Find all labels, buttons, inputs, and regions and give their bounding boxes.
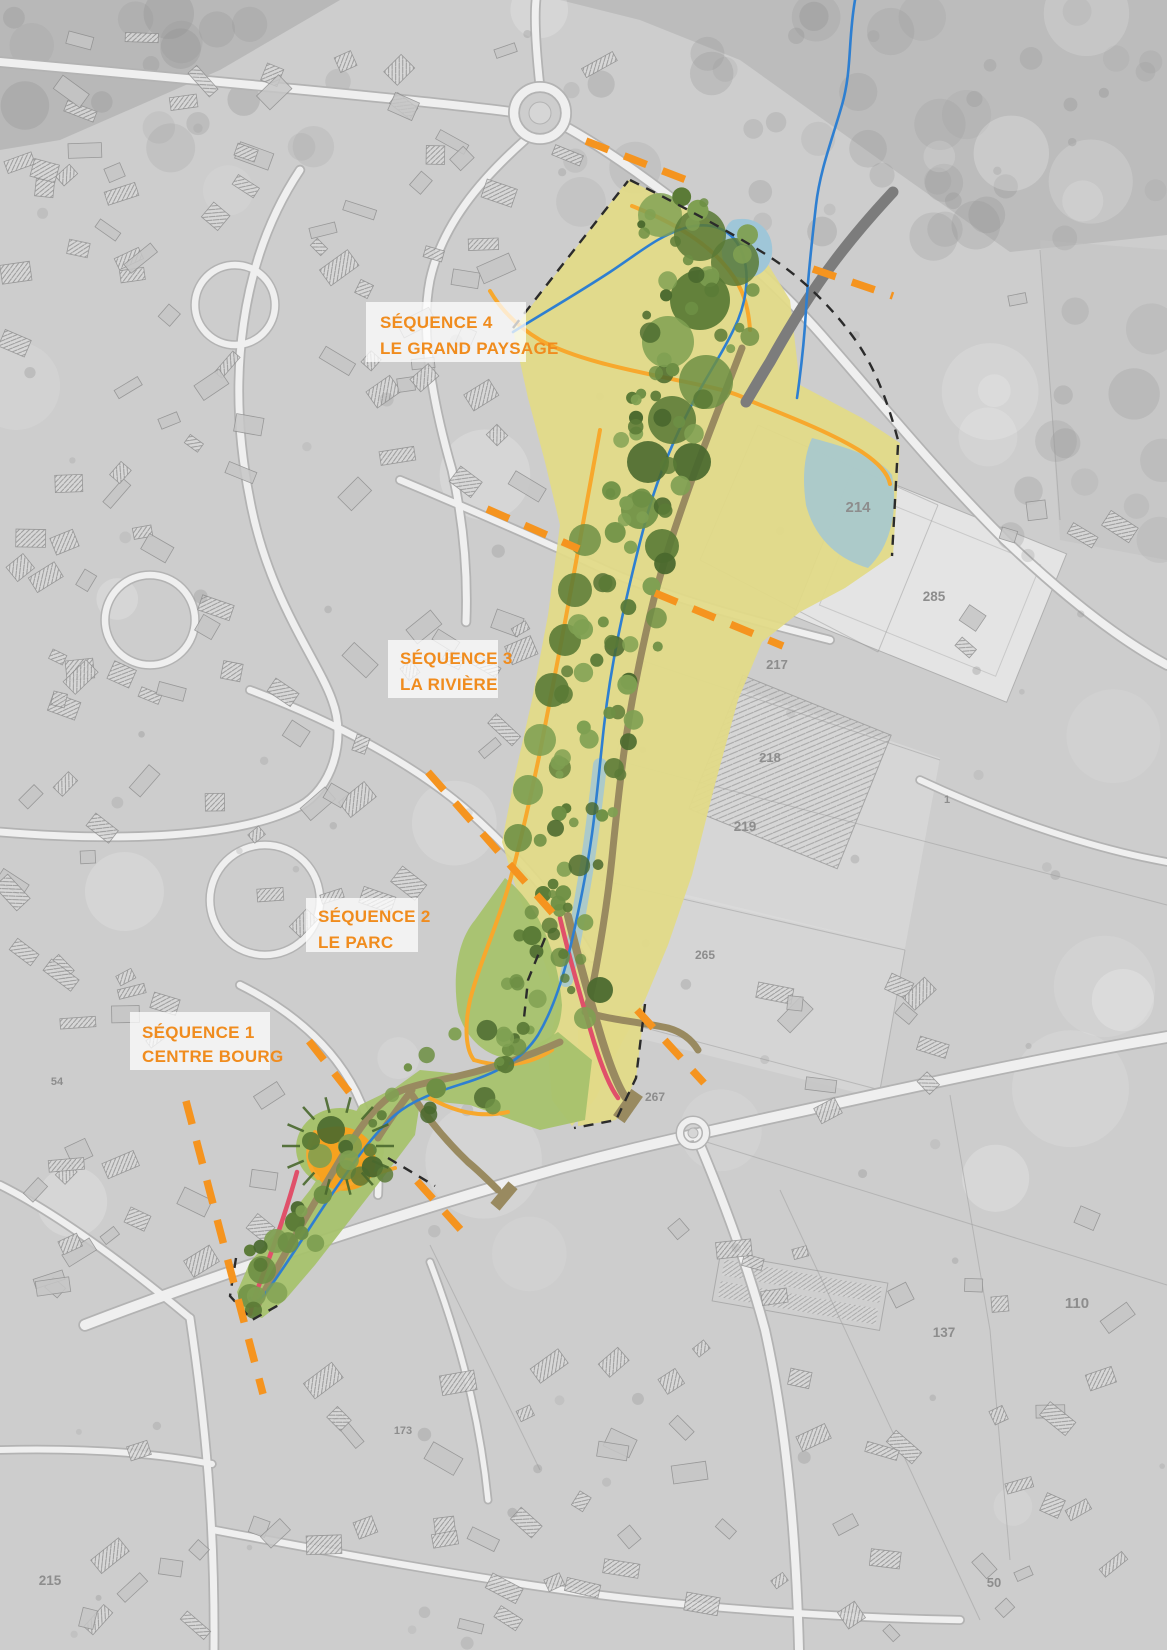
tree [575, 954, 586, 965]
building [220, 661, 243, 682]
parcel-label: 214 [845, 499, 871, 516]
building [68, 143, 102, 159]
tree [580, 730, 599, 749]
tree [617, 675, 637, 695]
gray-tree [24, 367, 35, 378]
gray-tree [193, 124, 202, 133]
forest-texture [1108, 368, 1159, 419]
forest-texture [143, 111, 175, 143]
gray-tree [1077, 610, 1084, 617]
tree [660, 289, 672, 301]
tree [558, 949, 568, 959]
gray-tree [798, 1451, 811, 1464]
tree [385, 1088, 399, 1102]
tree [314, 1186, 332, 1204]
tree [528, 990, 546, 1008]
gray-tree [1042, 862, 1052, 872]
map-canvas: 214 285 217 218 219 265 267 1 110 137 54… [0, 0, 1167, 1650]
tree [568, 855, 590, 877]
tree [577, 914, 593, 930]
tree [631, 394, 642, 405]
forest-texture [1, 81, 50, 130]
building [250, 1169, 278, 1190]
forest-texture [766, 112, 786, 132]
sequence-3-label-line2: LA RIVIÈRE [400, 675, 498, 694]
tree [628, 419, 644, 435]
tree [561, 665, 573, 677]
tree [254, 1258, 268, 1272]
gray-tree [1064, 98, 1078, 112]
forest-texture [749, 180, 773, 204]
tree [587, 977, 613, 1003]
forest-texture [1071, 468, 1098, 495]
gray-tree [867, 30, 879, 42]
tree [504, 824, 532, 852]
tree [649, 366, 663, 380]
building [426, 146, 445, 165]
tree [699, 198, 708, 207]
building [1026, 500, 1047, 521]
tree [567, 986, 575, 994]
tree [513, 775, 543, 805]
forest-texture [293, 126, 334, 167]
tree [604, 758, 624, 778]
tree [620, 599, 636, 615]
forest-texture [1052, 226, 1077, 251]
gray-tree [523, 30, 531, 38]
forest-texture [1020, 47, 1043, 70]
gray-tree [507, 1508, 517, 1518]
tree [517, 1022, 530, 1035]
tree [598, 575, 616, 593]
tree [684, 424, 704, 444]
tree [525, 905, 539, 919]
gray-tree [492, 544, 505, 557]
tree [642, 311, 651, 320]
ground-texture [959, 407, 1018, 466]
tree [586, 802, 599, 815]
gray-tree [732, 1243, 741, 1252]
tree [339, 1150, 359, 1170]
building [964, 1278, 982, 1292]
parcel-label: 285 [923, 589, 946, 604]
gray-tree [558, 168, 566, 176]
tree [495, 1057, 504, 1066]
tree [683, 255, 694, 266]
tree [624, 541, 637, 554]
tree [602, 481, 621, 500]
ground-texture [962, 1145, 1029, 1212]
tree [364, 1144, 377, 1157]
tree [673, 416, 685, 428]
building [306, 1535, 342, 1555]
tree [613, 432, 629, 448]
sequence-2-label-line1: SÉQUENCE 2 [318, 907, 431, 926]
tree [650, 391, 661, 402]
sequence-4-label-line2: LE GRAND PAYSAGE [380, 339, 559, 358]
gray-tree [96, 1595, 102, 1601]
building [51, 691, 68, 708]
gray-tree [119, 531, 131, 543]
gray-tree [1025, 1043, 1031, 1049]
parcel-label: 219 [734, 819, 757, 834]
forest-texture [869, 162, 894, 187]
gray-tree [428, 1225, 440, 1237]
building [205, 793, 225, 811]
gray-tree [930, 1139, 940, 1149]
gray-tree [952, 1257, 959, 1264]
gray-tree [1068, 138, 1076, 146]
gray-tree [632, 1393, 644, 1405]
gray-tree [993, 167, 1001, 175]
tree [733, 245, 752, 264]
gray-tree [112, 797, 124, 809]
tree [377, 1166, 393, 1182]
tree [477, 1020, 498, 1041]
forest-texture [91, 91, 113, 113]
gray-tree [418, 1428, 432, 1442]
building [869, 1549, 901, 1569]
sequence-1-label-line1: SÉQUENCE 1 [142, 1023, 255, 1042]
tree [555, 770, 563, 778]
tree [590, 654, 603, 667]
tree [307, 1234, 325, 1252]
forest-texture [849, 130, 887, 168]
tree [618, 513, 631, 526]
tree [740, 327, 759, 346]
building [158, 1558, 182, 1577]
tree [666, 363, 679, 376]
ground-texture [978, 374, 1011, 407]
gray-tree [302, 442, 311, 451]
tree [673, 443, 711, 481]
gray-tree [1159, 1463, 1165, 1469]
gray-tree [824, 204, 836, 216]
tree [548, 879, 559, 890]
parcel-label: 215 [39, 1573, 62, 1588]
forest-texture [1062, 297, 1089, 324]
tree [563, 903, 573, 913]
tree [658, 271, 677, 290]
forest-texture [1124, 494, 1149, 519]
tree [485, 1099, 501, 1115]
gray-tree [419, 1607, 430, 1618]
forest-texture [966, 91, 982, 107]
tree [368, 1119, 377, 1128]
tree [670, 236, 681, 247]
tree [608, 807, 618, 817]
parcel-label: 137 [933, 1325, 956, 1340]
gray-tree [1021, 549, 1034, 562]
forest-texture [952, 201, 1001, 250]
gray-tree [153, 1422, 161, 1430]
gray-tree [69, 457, 75, 463]
tree [568, 614, 589, 635]
gray-tree [380, 393, 394, 407]
tree [534, 834, 547, 847]
building [787, 996, 803, 1011]
ground-texture [1062, 180, 1103, 221]
tree [426, 1078, 446, 1098]
ground-texture [1066, 689, 1160, 783]
tree [693, 389, 713, 409]
gray-tree [330, 822, 337, 829]
gray-tree [851, 855, 860, 864]
gray-tree [1099, 88, 1109, 98]
tree [496, 1029, 514, 1047]
building [55, 474, 83, 492]
masterplan-map: 214 285 217 218 219 265 267 1 110 137 54… [0, 0, 1167, 1650]
tree [296, 1205, 308, 1217]
forest-texture [232, 7, 267, 42]
tree [569, 524, 601, 556]
tree [266, 1282, 288, 1304]
gray-tree [1050, 870, 1060, 880]
tree [424, 1101, 437, 1114]
tree [639, 227, 650, 238]
gray-tree [858, 1169, 867, 1178]
parcel-label: 217 [766, 657, 788, 672]
parcel-label: 265 [695, 948, 715, 962]
gray-tree [408, 1625, 417, 1634]
sequence-3-label-line1: SÉQUENCE 3 [400, 649, 513, 668]
gray-tree [984, 59, 997, 72]
tree [558, 573, 592, 607]
tree [509, 974, 523, 988]
tree [658, 503, 673, 518]
tree [746, 283, 760, 297]
tree [560, 974, 569, 983]
tree [555, 885, 571, 901]
tree [646, 608, 667, 629]
tree [632, 488, 651, 507]
tree [377, 1110, 387, 1120]
tree [686, 217, 700, 231]
tree [598, 616, 609, 627]
ground-texture [1092, 969, 1154, 1031]
parcel-label: 218 [759, 750, 781, 765]
tree [302, 1132, 320, 1150]
tree [636, 511, 648, 523]
gray-tree [236, 848, 243, 855]
tree [522, 926, 541, 945]
tree [404, 1063, 412, 1071]
building [0, 261, 32, 284]
tree [418, 1047, 434, 1063]
tree [660, 457, 677, 474]
tree [671, 476, 691, 496]
tree [654, 553, 676, 575]
gray-tree [293, 866, 300, 873]
gray-tree [37, 208, 48, 219]
forest-texture [1145, 179, 1167, 201]
sequence-1-label-line2: CENTRE BOURG [142, 1047, 284, 1066]
forest-texture [160, 21, 203, 64]
gray-tree [972, 666, 981, 675]
tree [551, 755, 566, 770]
forest-texture [743, 119, 763, 139]
ground-texture [974, 116, 1049, 191]
parcel-label: 54 [51, 1076, 64, 1088]
tree [653, 409, 671, 427]
tree [548, 928, 560, 940]
tree [574, 663, 593, 682]
gray-tree [602, 1478, 611, 1487]
building [60, 1016, 96, 1029]
tree [624, 710, 644, 730]
gray-tree [760, 1055, 769, 1064]
gray-tree [973, 770, 983, 780]
tree [569, 818, 579, 828]
parcel-label: 1 [944, 794, 950, 806]
building [257, 887, 284, 901]
tree [593, 859, 604, 870]
ground-texture [377, 1037, 419, 1079]
tree [253, 1240, 267, 1254]
tree [714, 329, 727, 342]
sequence-4-label-line1: SÉQUENCE 4 [380, 313, 493, 332]
building [468, 238, 498, 251]
gray-tree [461, 1637, 474, 1650]
tree [574, 1007, 596, 1029]
tree [547, 820, 564, 837]
tree [622, 636, 638, 652]
ground-texture [85, 852, 164, 931]
tree [672, 187, 691, 206]
building [16, 529, 46, 547]
gray-tree [138, 731, 145, 738]
parcel-label: 173 [394, 1425, 412, 1437]
forest-texture [713, 57, 738, 82]
forest-texture [3, 7, 25, 29]
gray-tree [929, 1395, 936, 1402]
gray-tree [786, 708, 795, 717]
tree [645, 209, 656, 220]
building [80, 850, 96, 863]
gray-tree [1019, 689, 1025, 695]
tree [640, 322, 661, 343]
tree [619, 496, 633, 510]
tree [704, 283, 719, 298]
building [125, 32, 158, 42]
building [991, 1296, 1009, 1313]
tree [524, 724, 556, 756]
gray-tree [247, 1545, 253, 1551]
gray-tree [533, 1464, 542, 1473]
tree [726, 344, 735, 353]
forest-texture [199, 11, 235, 47]
tree [620, 733, 637, 750]
sequence-2-label-line2: LE PARC [318, 933, 393, 952]
tree [653, 641, 663, 651]
parcel-label: 267 [645, 1090, 665, 1104]
tree [603, 707, 615, 719]
gray-tree [260, 757, 268, 765]
gray-tree [324, 606, 332, 614]
gray-tree [194, 590, 208, 604]
ground-texture [924, 141, 956, 173]
tree [448, 1027, 461, 1040]
tree [688, 267, 704, 283]
tree [295, 1226, 309, 1240]
tree [604, 635, 619, 650]
gray-tree [76, 1429, 82, 1435]
building [761, 1288, 788, 1306]
parcel-label: 110 [1065, 1295, 1089, 1312]
tree [554, 685, 573, 704]
gray-tree [555, 1395, 565, 1405]
forest-texture [801, 122, 835, 156]
ground-texture [492, 1217, 567, 1292]
tree [685, 302, 698, 315]
forest-texture [1136, 62, 1156, 82]
gray-tree [681, 979, 692, 990]
tree [552, 806, 567, 821]
forest-texture [1054, 385, 1073, 404]
parcel-label: 50 [987, 1575, 1001, 1590]
gray-tree [70, 1631, 77, 1638]
tree [637, 220, 645, 228]
